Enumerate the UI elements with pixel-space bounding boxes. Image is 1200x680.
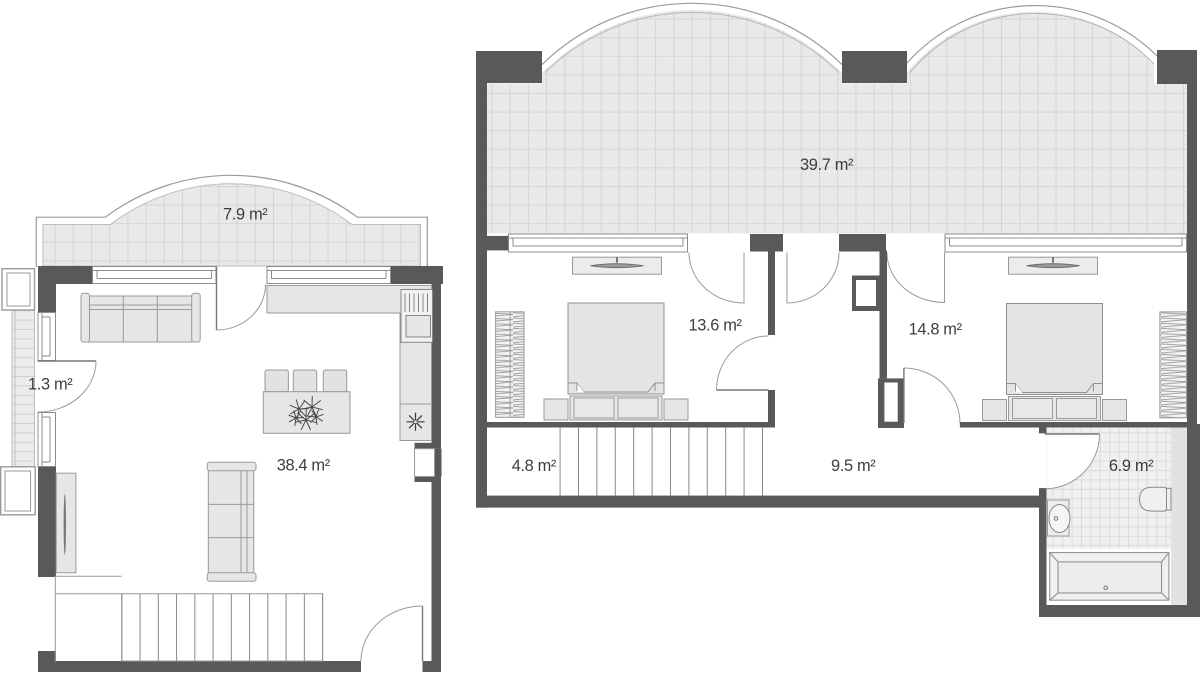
svg-text:13.6 m²: 13.6 m²: [689, 317, 743, 335]
svg-text:38.4 m²: 38.4 m²: [277, 457, 331, 475]
svg-text:14.8 m²: 14.8 m²: [909, 321, 963, 339]
svg-text:6.9 m²: 6.9 m²: [1109, 457, 1154, 475]
svg-text:1.3 m²: 1.3 m²: [28, 376, 73, 394]
svg-text:7.9 m²: 7.9 m²: [223, 206, 268, 224]
svg-text:4.8 m²: 4.8 m²: [512, 457, 557, 475]
svg-text:9.5 m²: 9.5 m²: [831, 457, 876, 475]
svg-text:39.7 m²: 39.7 m²: [800, 156, 854, 174]
